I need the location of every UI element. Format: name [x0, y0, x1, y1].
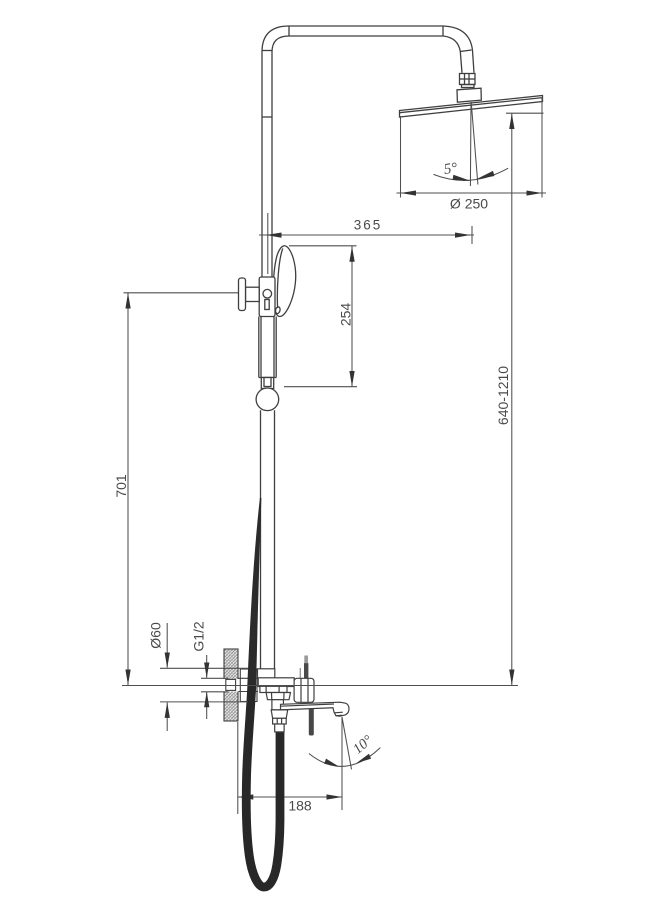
- svg-text:Ø60: Ø60: [148, 622, 164, 649]
- svg-text:365: 365: [354, 218, 383, 233]
- svg-text:701: 701: [113, 474, 129, 498]
- svg-text:640-1210: 640-1210: [495, 366, 511, 425]
- svg-text:5°: 5°: [443, 160, 459, 178]
- svg-text:10°: 10°: [350, 732, 376, 757]
- svg-text:254: 254: [338, 303, 354, 327]
- svg-text:G1/2: G1/2: [191, 621, 207, 652]
- svg-text:Ø 250: Ø 250: [450, 196, 488, 212]
- svg-text:188: 188: [288, 798, 312, 814]
